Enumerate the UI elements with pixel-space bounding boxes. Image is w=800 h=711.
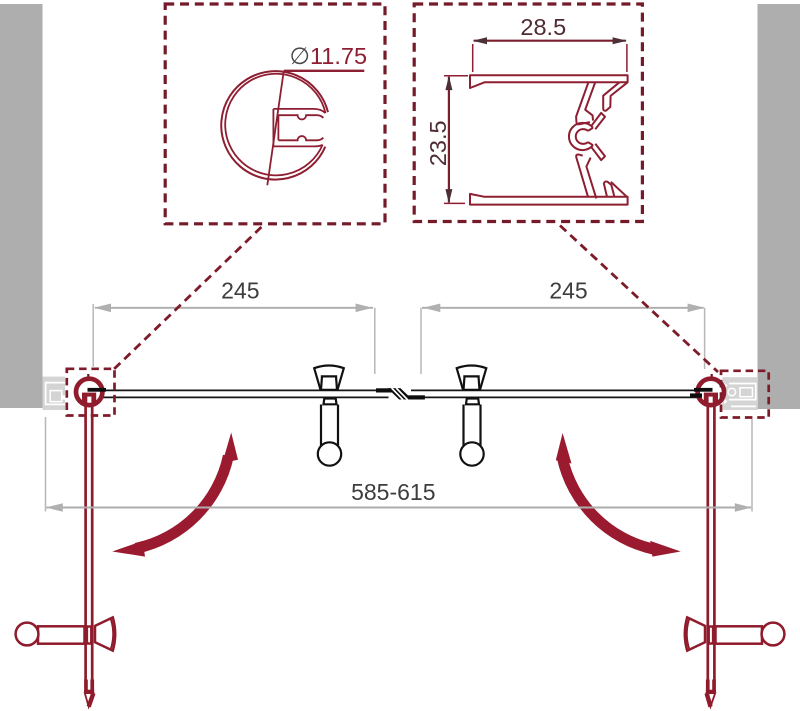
svg-text:585-615: 585-615 <box>351 479 435 505</box>
svg-text:245: 245 <box>549 278 587 304</box>
svg-text:245: 245 <box>221 278 259 304</box>
svg-text:∅11.75: ∅11.75 <box>290 43 368 69</box>
svg-text:23.5: 23.5 <box>425 120 451 166</box>
svg-text:28.5: 28.5 <box>520 14 566 40</box>
